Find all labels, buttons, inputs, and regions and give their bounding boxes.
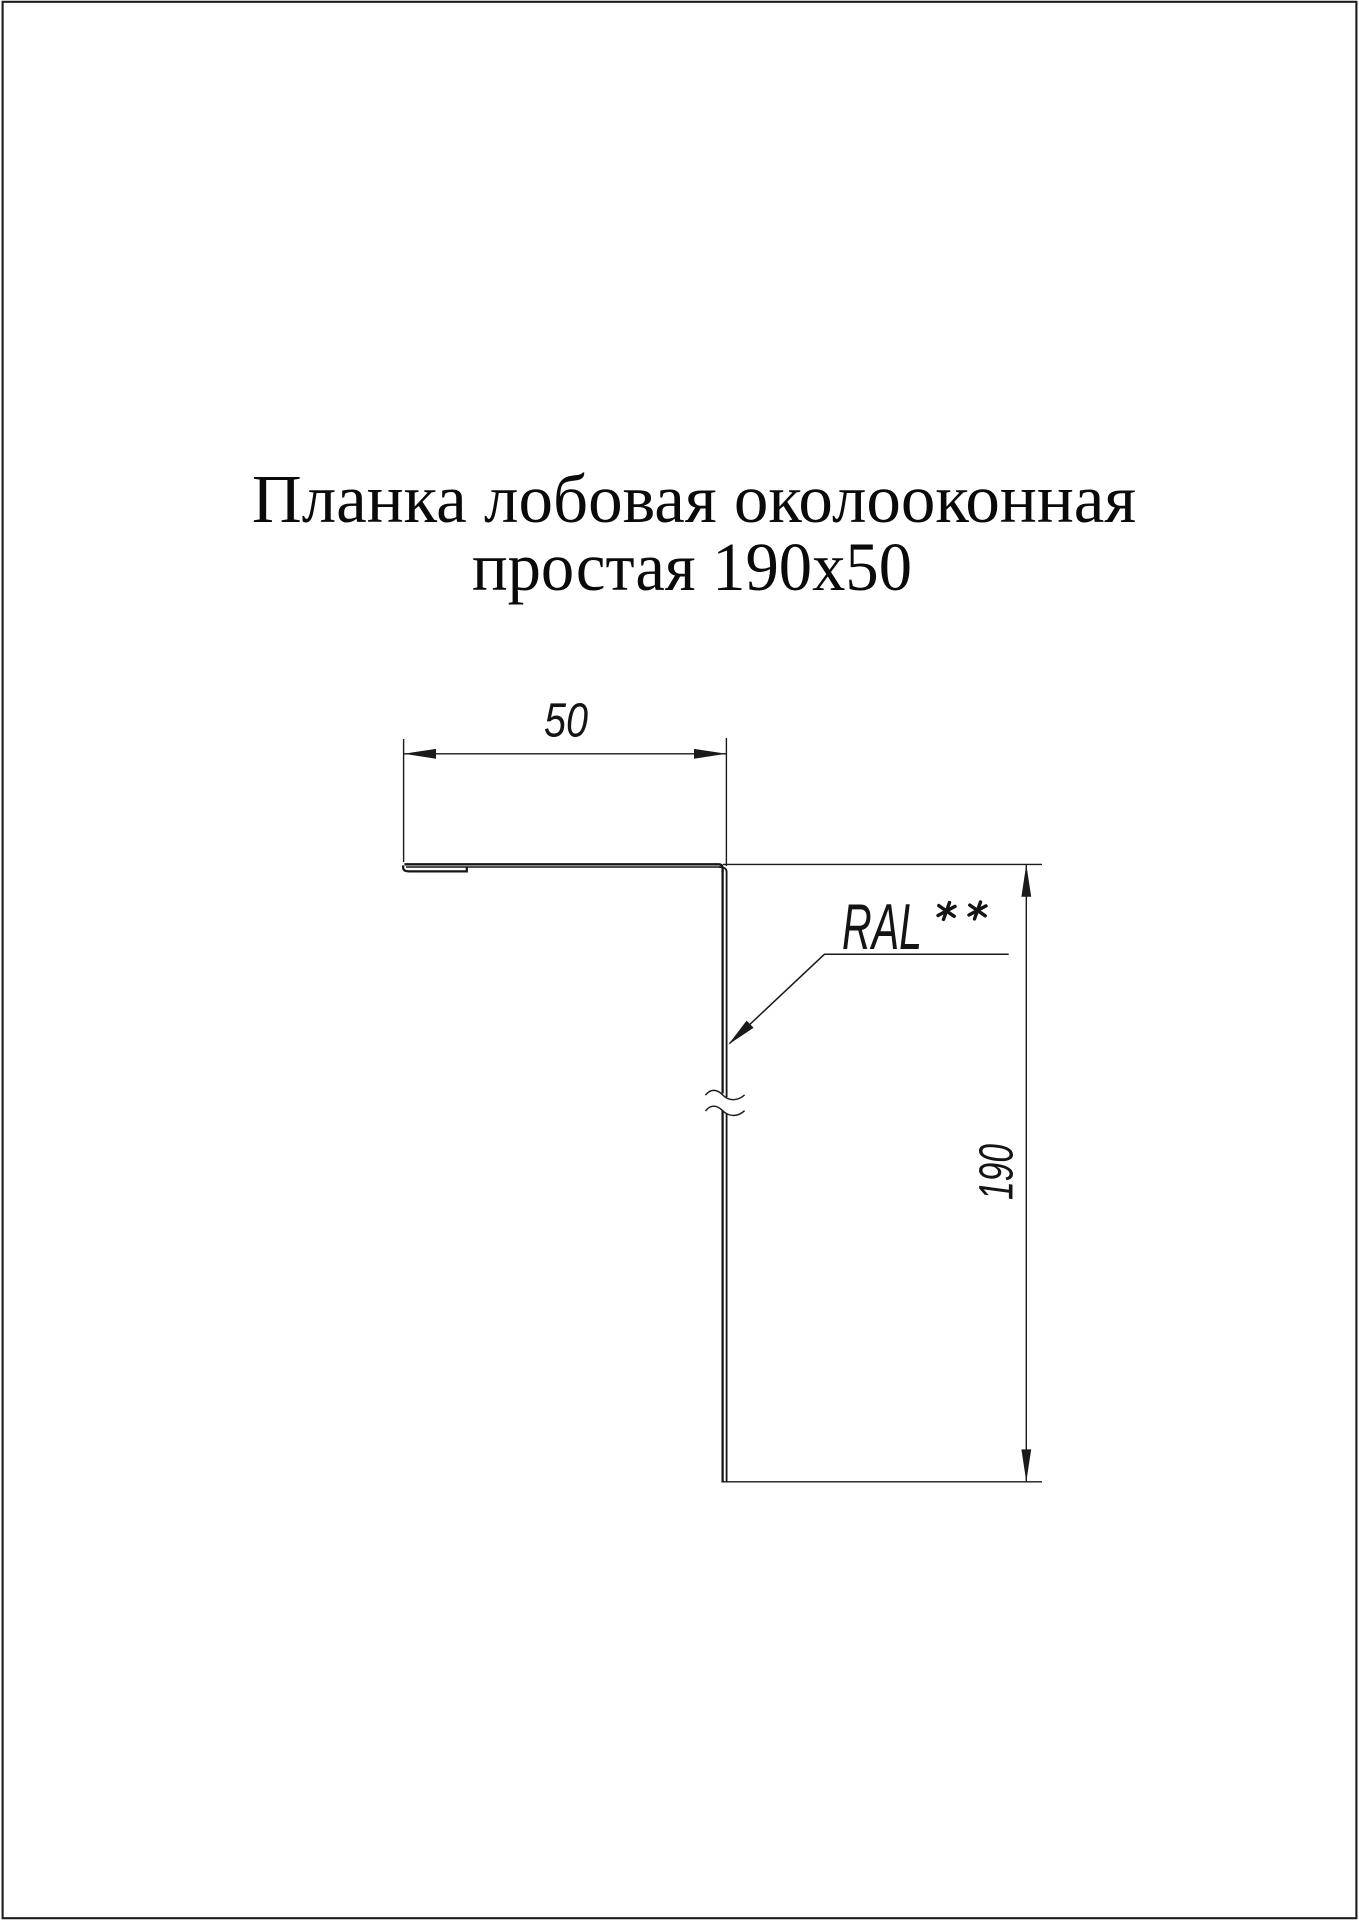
svg-text:50: 50 <box>544 695 588 748</box>
svg-text:Планка лобовая околооконная: Планка лобовая околооконная <box>252 461 1136 537</box>
svg-text:RAL: RAL <box>842 890 922 963</box>
svg-text:190: 190 <box>971 1144 1024 1200</box>
svg-text:простая 190х50: простая 190х50 <box>472 529 912 605</box>
